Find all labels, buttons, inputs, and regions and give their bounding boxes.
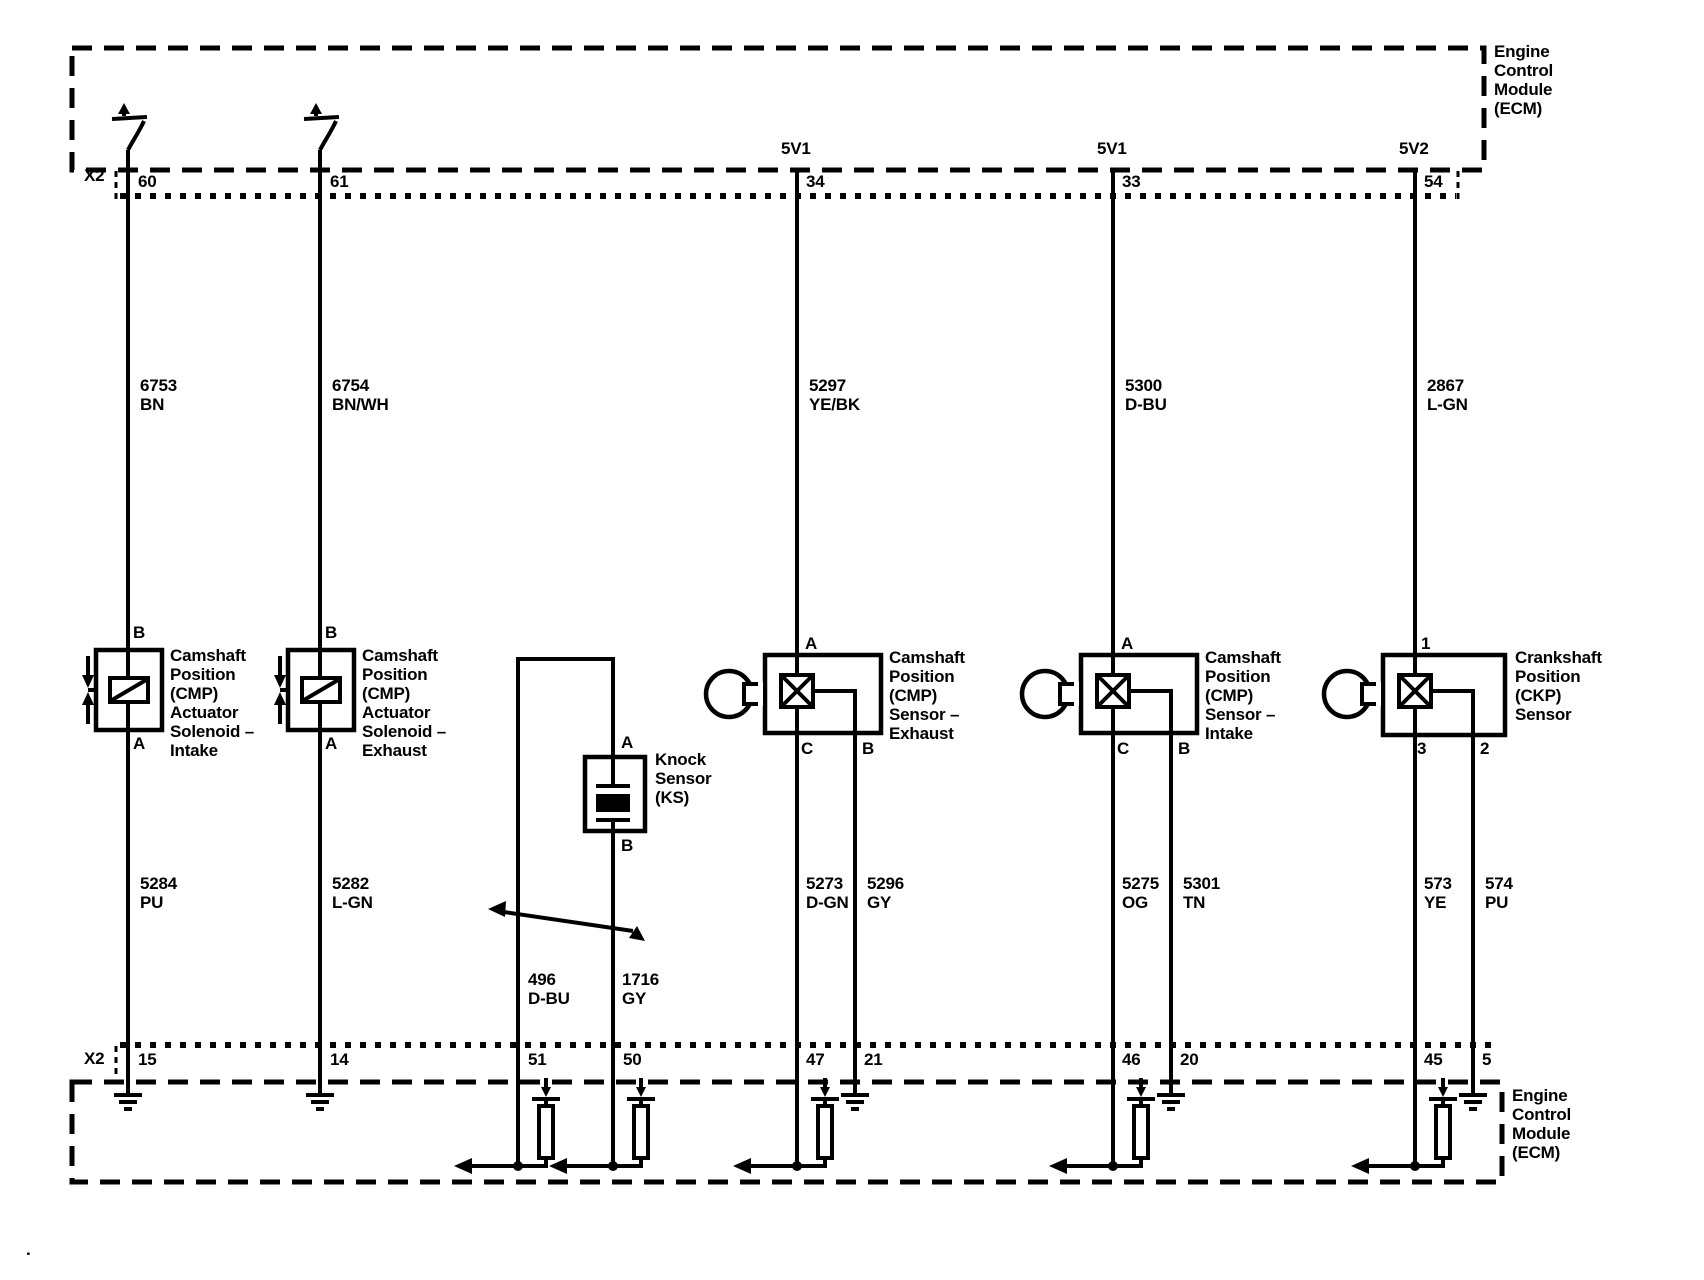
wire-label-5297: 5297YE/BK [809, 376, 860, 414]
wire-label-6753: 6753BN [140, 376, 177, 414]
pin-14-label: 14 [330, 1050, 349, 1069]
pin-a-cmp-intake: A [1121, 634, 1133, 653]
wire-label-5273: 5273D-GN [806, 874, 849, 912]
pin-47-label: 47 [806, 1050, 825, 1069]
pin-b-cmp-exhaust: B [862, 739, 874, 758]
twisted-pair-icon [488, 901, 645, 941]
cmp-actuator-exhaust-symbol [274, 650, 354, 730]
pullup-resistor-icon [1049, 1078, 1155, 1174]
stray-dot: . [26, 1240, 31, 1259]
pin-1-ckp: 1 [1421, 634, 1430, 653]
pin-33-label: 33 [1122, 172, 1141, 191]
pullup-resistor-icon [1351, 1078, 1457, 1174]
reluctor-ring-icon [706, 671, 763, 717]
pin-b-knock-sensor: B [621, 836, 633, 855]
cmp-sensor-exhaust-label: Camshaft Position (CMP) Sensor – Exhaust [889, 648, 965, 743]
wire-label-574: 574PU [1485, 874, 1513, 912]
ecm-driver-icon [304, 103, 339, 150]
pin-b-intake-actuator: B [133, 623, 145, 642]
wire-label-6754: 6754BN/WH [332, 376, 389, 414]
wire-knock-sensor-loop [518, 659, 613, 1168]
pin-60-label: 60 [138, 172, 157, 191]
ref-5v1-exhaust-label: 5V1 [781, 139, 811, 158]
ecm-driver-icon [112, 103, 147, 150]
pin-51-label: 51 [528, 1050, 547, 1069]
reluctor-ring-icon [1324, 671, 1381, 717]
wire-ckp [1415, 170, 1473, 1168]
connector-x2-bottom-label: X2 [84, 1049, 104, 1068]
reluctor-ring-icon [1022, 671, 1079, 717]
pullup-resistor-icon [454, 1078, 560, 1174]
sensor-element-icon [781, 675, 813, 707]
wire-label-573: 573YE [1424, 874, 1452, 912]
pin-15-label: 15 [138, 1050, 157, 1069]
pin-50-label: 50 [623, 1050, 642, 1069]
wire-cmp-intake [1113, 170, 1171, 1168]
ckp-sensor-label: Crankshaft Position (CKP) Sensor [1515, 648, 1602, 724]
pin-c-cmp-exhaust: C [801, 739, 813, 758]
wiring-diagram: Engine Control Module (ECM) X2 60 61 5V1… [0, 0, 1704, 1280]
diagram-canvas [0, 0, 1704, 1280]
ref-5v2-label: 5V2 [1399, 139, 1429, 158]
pullup-resistor-icon [733, 1078, 839, 1174]
ref-5v1-intake-label: 5V1 [1097, 139, 1127, 158]
wire-label-5282: 5282L-GN [332, 874, 373, 912]
cmp-sensor-intake-label: Camshaft Position (CMP) Sensor – Intake [1205, 648, 1281, 743]
pin-a-exhaust-actuator: A [325, 734, 337, 753]
cmp-actuator-intake-symbol [82, 650, 162, 730]
sensor-element-icon [1097, 675, 1129, 707]
wire-cmp-exhaust [797, 170, 855, 1168]
pin-3-ckp: 3 [1417, 739, 1426, 758]
wire-label-5301: 5301TN [1183, 874, 1220, 912]
cmp-actuator-intake-label: Camshaft Position (CMP) Actuator Solenoi… [170, 646, 254, 760]
pin-61-label: 61 [330, 172, 349, 191]
pin-a-intake-actuator: A [133, 734, 145, 753]
wire-label-5296: 5296GY [867, 874, 904, 912]
ecm-top-label: Engine Control Module (ECM) [1494, 42, 1553, 118]
pin-b-cmp-intake: B [1178, 739, 1190, 758]
pin-45-label: 45 [1424, 1050, 1443, 1069]
pin-c-cmp-intake: C [1117, 739, 1129, 758]
wire-label-496: 496D-BU [528, 970, 570, 1008]
pin-21-label: 21 [864, 1050, 883, 1069]
pin-2-ckp: 2 [1480, 739, 1489, 758]
pin-54-label: 54 [1424, 172, 1443, 191]
connector-x2-top-label: X2 [84, 166, 104, 185]
wire-label-2867: 2867L-GN [1427, 376, 1468, 414]
pin-46-label: 46 [1122, 1050, 1141, 1069]
wire-label-1716: 1716GY [622, 970, 659, 1008]
pin-b-exhaust-actuator: B [325, 623, 337, 642]
pin-a-knock-sensor: A [621, 733, 633, 752]
knock-sensor-label: Knock Sensor (KS) [655, 750, 711, 807]
ecm-bottom-label: Engine Control Module (ECM) [1512, 1086, 1571, 1162]
sensor-element-icon [1399, 675, 1431, 707]
ecm-top-box [72, 48, 1484, 170]
pin-20-label: 20 [1180, 1050, 1199, 1069]
pin-5-label: 5 [1482, 1050, 1491, 1069]
pullup-resistor-icon [549, 1078, 655, 1174]
wire-label-5284: 5284PU [140, 874, 177, 912]
wire-label-5275: 5275OG [1122, 874, 1159, 912]
pin-34-label: 34 [806, 172, 825, 191]
pin-a-cmp-exhaust: A [805, 634, 817, 653]
wire-label-5300: 5300D-BU [1125, 376, 1167, 414]
cmp-actuator-exhaust-label: Camshaft Position (CMP) Actuator Solenoi… [362, 646, 446, 760]
